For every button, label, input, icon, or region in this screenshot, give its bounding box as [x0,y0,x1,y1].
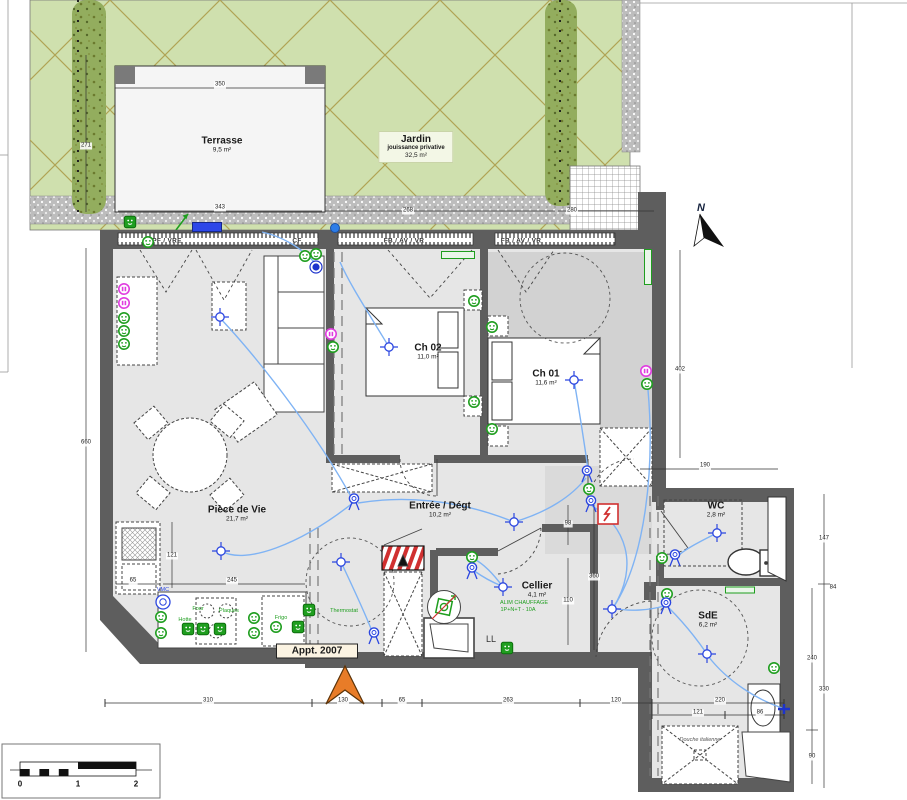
floor-plan-page: Appt. 2007 N Terrasse9,5 m²Jardinjouissa… [0,0,907,800]
garden-layer [30,0,666,232]
north-arrow [694,214,724,247]
windows-layer [118,233,615,245]
scale-bar [2,744,160,798]
apartment-pointer-arrow [326,666,364,704]
floor-plan-drawing [0,0,907,800]
